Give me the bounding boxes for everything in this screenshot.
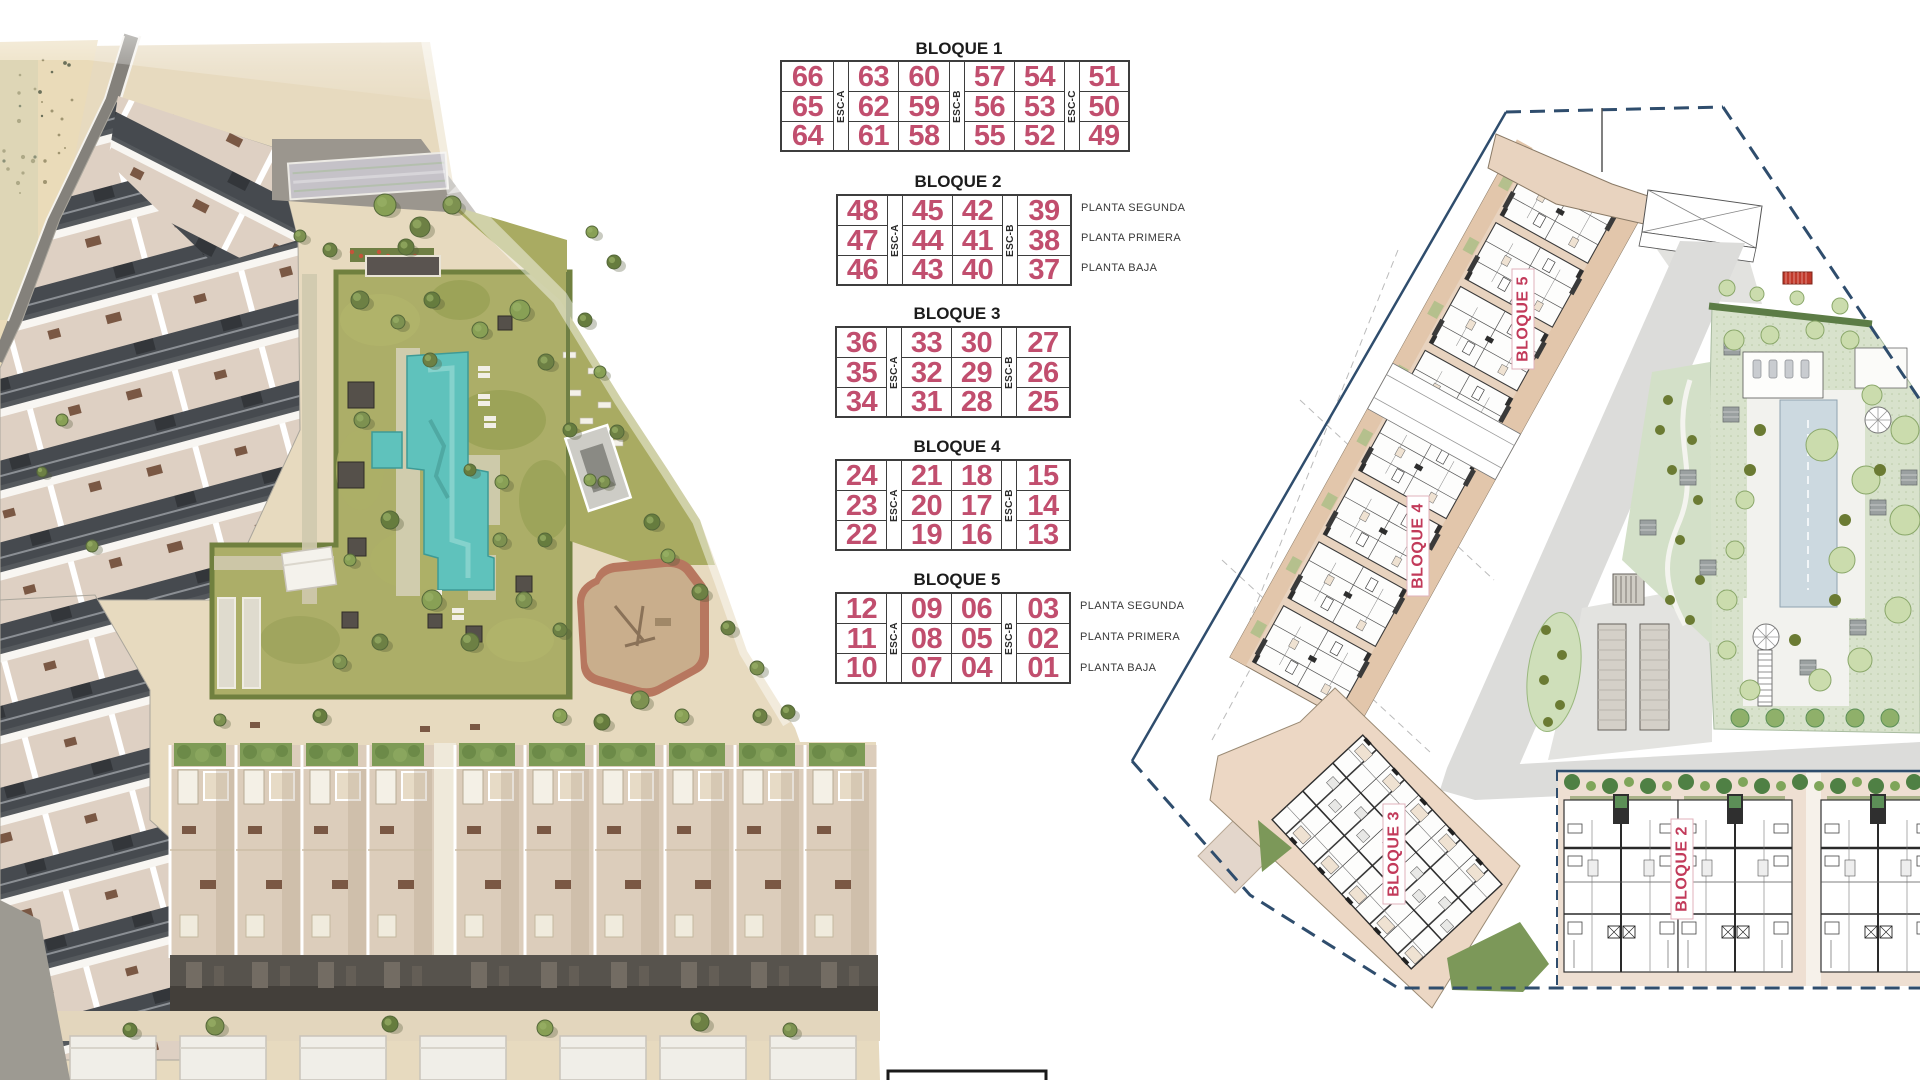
svg-text:BLOQUE 3: BLOQUE 3: [1386, 811, 1403, 897]
svg-text:BLOQUE 4: BLOQUE 4: [1410, 503, 1427, 589]
svg-text:BLOQUE 5: BLOQUE 5: [1515, 276, 1532, 362]
svg-text:BLOQUE 2: BLOQUE 2: [1674, 826, 1691, 912]
